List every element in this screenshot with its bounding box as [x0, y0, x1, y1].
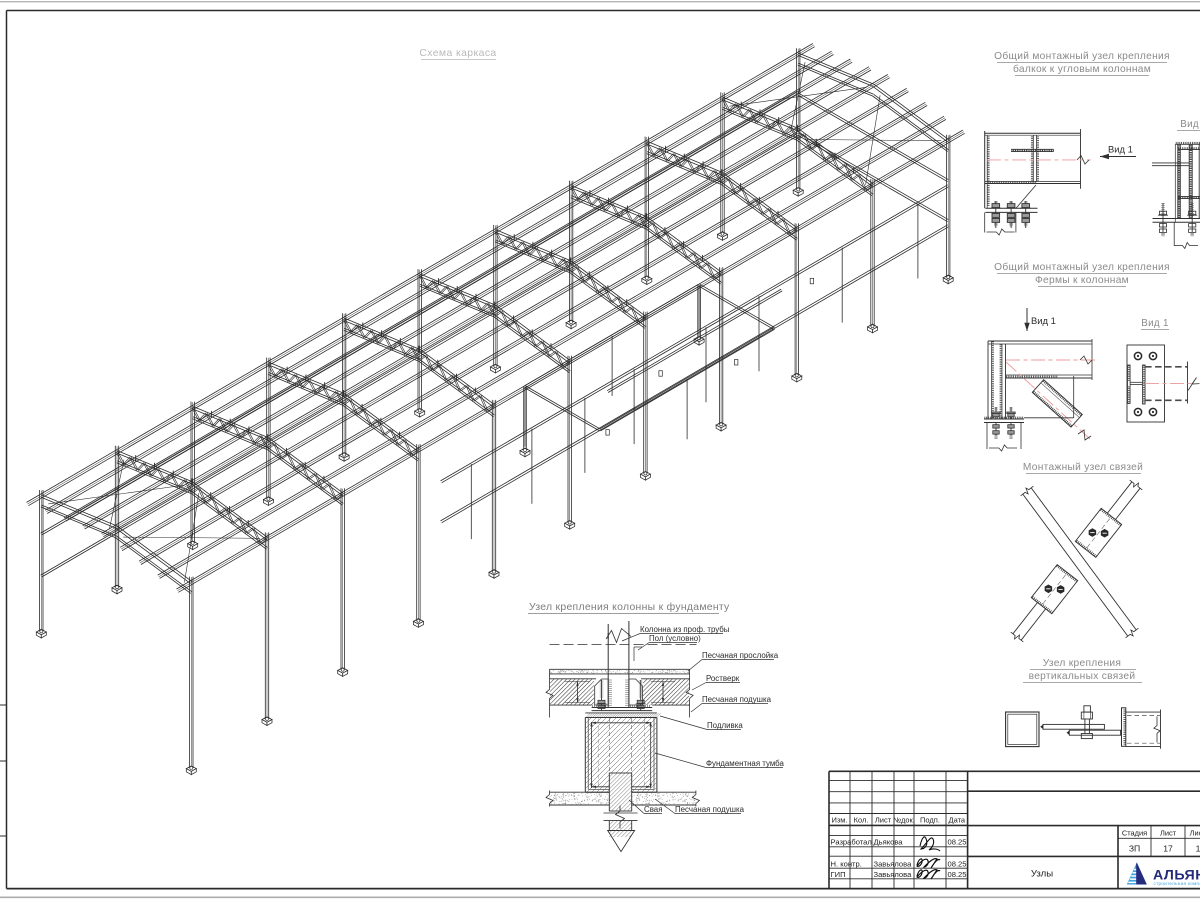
- svg-text:Свая: Свая: [644, 805, 662, 814]
- svg-text:Лис: Лис: [1190, 828, 1200, 837]
- svg-text:ГИП: ГИП: [831, 870, 846, 879]
- svg-text:Подп.: Подп.: [920, 815, 940, 824]
- svg-text:Завьялова: Завьялова: [874, 859, 913, 868]
- svg-text:Узел крепления колонны к фунда: Узел крепления колонны к фундаменту: [529, 601, 730, 613]
- svg-text:Вид 1: Вид 1: [1108, 144, 1133, 155]
- svg-text:Лист: Лист: [875, 815, 892, 824]
- svg-text:строительная компания: строительная компания: [1154, 881, 1200, 886]
- svg-text:1: 1: [1196, 844, 1200, 854]
- svg-text:Песчаная подушка: Песчаная подушка: [702, 695, 772, 704]
- svg-text:балкок к угловым колоннам: балкок к угловым колоннам: [1013, 63, 1151, 75]
- svg-text:Разработал: Разработал: [831, 837, 872, 846]
- svg-text:Вид 1: Вид 1: [1180, 119, 1200, 130]
- svg-text:Фермы к колоннам: Фермы к колоннам: [1035, 275, 1129, 286]
- svg-text:ЗП: ЗП: [1129, 844, 1140, 854]
- svg-text:Колонна из проф. трубы: Колонна из проф. трубы: [640, 625, 730, 634]
- svg-text:Завьялова: Завьялова: [874, 870, 913, 879]
- svg-text:08.25: 08.25: [948, 870, 967, 879]
- svg-text:Песчаная прослойка: Песчаная прослойка: [702, 651, 779, 660]
- svg-text:Общий монтажный узел крепления: Общий монтажный узел крепления: [994, 50, 1170, 62]
- svg-text:Лист: Лист: [1160, 828, 1177, 837]
- svg-text:Пол (условно): Пол (условно): [649, 634, 701, 643]
- svg-text:Стадия: Стадия: [1122, 828, 1147, 837]
- svg-text:вертикальных связей: вертикальных связей: [1029, 671, 1136, 682]
- svg-text:Монтажный узел связей: Монтажный узел связей: [1023, 462, 1143, 473]
- svg-text:Подливка: Подливка: [707, 721, 743, 730]
- svg-text:Узел крепления: Узел крепления: [1043, 658, 1122, 669]
- svg-text:Схема каркаса: Схема каркаса: [419, 48, 496, 59]
- svg-text:Кол.: Кол.: [854, 815, 869, 824]
- svg-text:Н. контр.: Н. контр.: [831, 859, 862, 868]
- svg-text:08.25: 08.25: [948, 859, 967, 868]
- svg-text:17: 17: [1163, 844, 1173, 854]
- svg-text:Узлы: Узлы: [1031, 869, 1053, 880]
- svg-text:Дьякова: Дьякова: [874, 837, 904, 846]
- svg-text:Изм.: Изм.: [831, 815, 847, 824]
- svg-text:Дата: Дата: [948, 815, 965, 824]
- svg-text:08.25: 08.25: [948, 837, 967, 846]
- svg-text:Песчаная подушка: Песчаная подушка: [675, 805, 745, 814]
- svg-text:Вид 1: Вид 1: [1031, 315, 1056, 326]
- svg-text:Вид 1: Вид 1: [1141, 318, 1168, 329]
- svg-text:Общий монтажный узел крепления: Общий монтажный узел крепления: [994, 261, 1170, 273]
- svg-text:Фундаментная тумба: Фундаментная тумба: [706, 759, 785, 768]
- svg-text:№док.: №док.: [893, 815, 914, 824]
- svg-text:Ростверк: Ростверк: [706, 674, 740, 683]
